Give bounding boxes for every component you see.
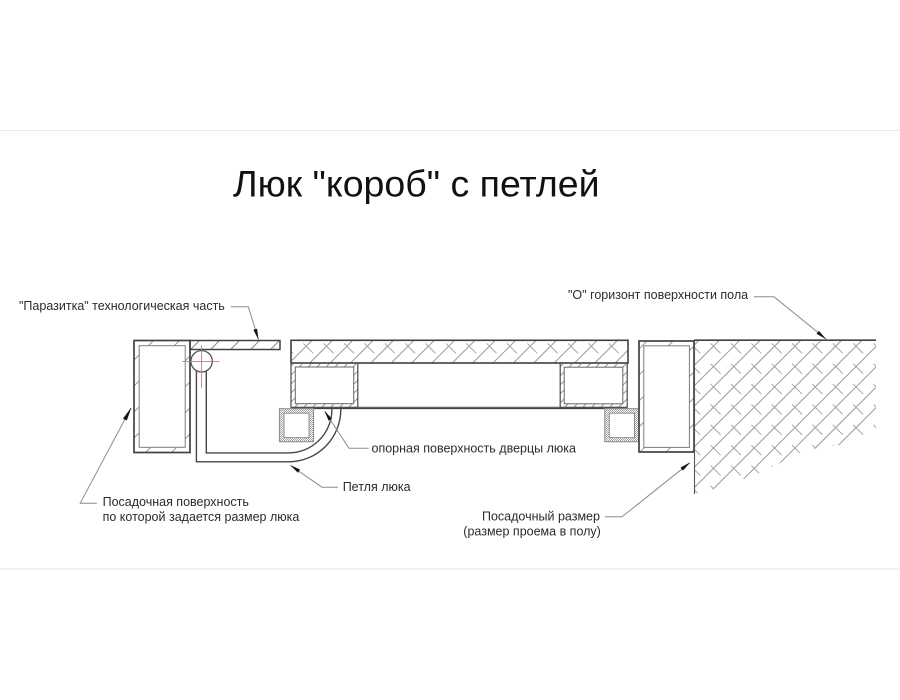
svg-text:по которой задается размер люк: по которой задается размер люка [103, 510, 300, 524]
svg-text:Посадочная поверхность: Посадочная поверхность [103, 495, 249, 509]
svg-text:Люк "короб" с петлей: Люк "короб" с петлей [233, 163, 600, 205]
svg-text:"Паразитка" технологическая ча: "Паразитка" технологическая часть [19, 299, 225, 313]
svg-text:(размер проема в полу): (размер проема в полу) [463, 524, 601, 538]
svg-text:опорная поверхность дверцы люк: опорная поверхность дверцы люка [372, 441, 576, 455]
svg-text:Посадочный размер: Посадочный размер [482, 510, 600, 524]
svg-text:Петля люка: Петля люка [343, 480, 411, 494]
svg-text:"О" горизонт поверхности пола: "О" горизонт поверхности пола [568, 288, 748, 302]
